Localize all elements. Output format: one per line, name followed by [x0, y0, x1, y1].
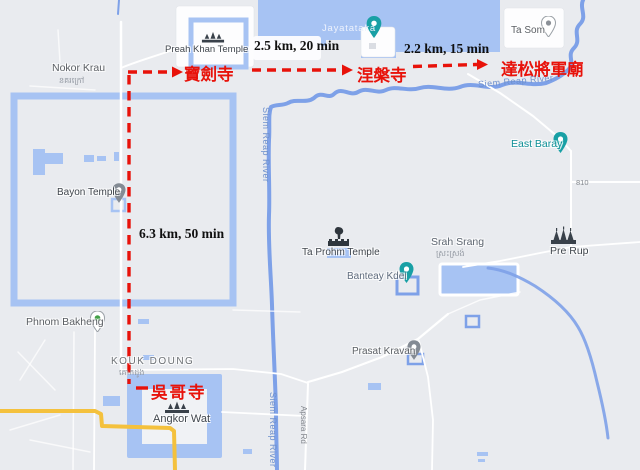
royal-pond-2	[97, 156, 106, 161]
pond-br2	[478, 459, 485, 462]
annotation-distance-1: 2.5 km, 20 min	[254, 38, 339, 54]
stream-top	[118, 0, 119, 14]
annotation-stop-angkor-wat: 吳哥寺	[151, 379, 207, 403]
route-seg3	[413, 65, 477, 67]
pond-bk1	[138, 319, 149, 324]
route-layer	[128, 59, 488, 388]
route-arrow2	[342, 65, 353, 76]
road-tex-1	[18, 352, 55, 390]
label-river-mid: Siem Reap River	[261, 107, 271, 183]
road-west-1	[94, 330, 95, 470]
srah-srang-reservoir	[440, 264, 518, 295]
west-pond	[103, 396, 120, 406]
royal-pond-1	[84, 155, 94, 162]
label-ta-som[interactable]: Ta Som	[511, 25, 545, 36]
annotation-stop-preah-khan: 寶劍寺	[184, 61, 234, 85]
label-kouk-doung-khmer: គោកដូង	[119, 367, 144, 379]
pond-east	[503, 281, 516, 288]
royal-pond-3	[114, 152, 119, 161]
baphuon-pond2	[36, 153, 63, 164]
label-angkor-wat[interactable]: Angkor Wat	[153, 413, 210, 425]
road-layer	[0, 22, 640, 470]
label-east-baray[interactable]: East Baray	[511, 138, 562, 150]
label-srah-srang[interactable]: Srah Srang	[431, 236, 484, 248]
pond-br1	[477, 452, 488, 456]
pond-mid	[368, 383, 381, 390]
label-nokor-krau[interactable]: Nokor Krau	[52, 62, 105, 74]
label-river-bottom: Siem Reap River	[268, 392, 278, 468]
annotation-stop-ta-som: 達松將軍廟	[501, 56, 584, 80]
label-ta-prohm[interactable]: Ta Prohm Temple	[302, 247, 380, 258]
label-kouk-doung: KOUK DOUNG	[111, 356, 194, 367]
label-nokor-krau-khmer: នគរក្រៅ	[59, 75, 84, 87]
label-road-810: 810	[576, 178, 589, 187]
annotation-distance-3: 6.3 km, 50 min	[139, 226, 224, 242]
road-tex-3	[30, 440, 90, 452]
label-pre-rup[interactable]: Pre Rup	[550, 245, 589, 257]
label-phnom-bakheng[interactable]: Phnom Bakheng	[26, 316, 104, 328]
label-srah-srang-khmer: ស្រះស្រង់	[436, 248, 465, 260]
label-preah-khan[interactable]: Preah Khan Temple	[165, 44, 248, 55]
route-arrow1	[172, 67, 183, 78]
route-arrow3	[477, 59, 488, 70]
road-nokor-2	[58, 30, 60, 62]
neak-pean-footprint	[369, 43, 376, 49]
label-banteay-kdei[interactable]: Banteay Kdei	[347, 271, 407, 282]
map-canvas: Nokor Krau នគរក្រៅ Preah Khan Temple Jay…	[0, 0, 640, 470]
label-apsara-rd: Apsara Rd	[299, 406, 308, 444]
road-tex-5	[233, 310, 300, 312]
pond-river	[243, 449, 252, 454]
road-tex-2	[10, 415, 60, 430]
label-jayatataka[interactable]: Jayatataka	[322, 23, 376, 34]
annotation-distance-2: 2.2 km, 15 min	[404, 41, 489, 57]
label-bayon[interactable]: Bayon Temple	[57, 187, 120, 198]
road-tex-4	[20, 340, 45, 380]
road-aw-south	[222, 412, 305, 416]
small-outline-east	[466, 316, 479, 327]
label-prasat-kravan[interactable]: Prasat Kravan	[352, 346, 415, 357]
annotation-stop-neak-pean: 涅槃寺	[357, 62, 407, 86]
